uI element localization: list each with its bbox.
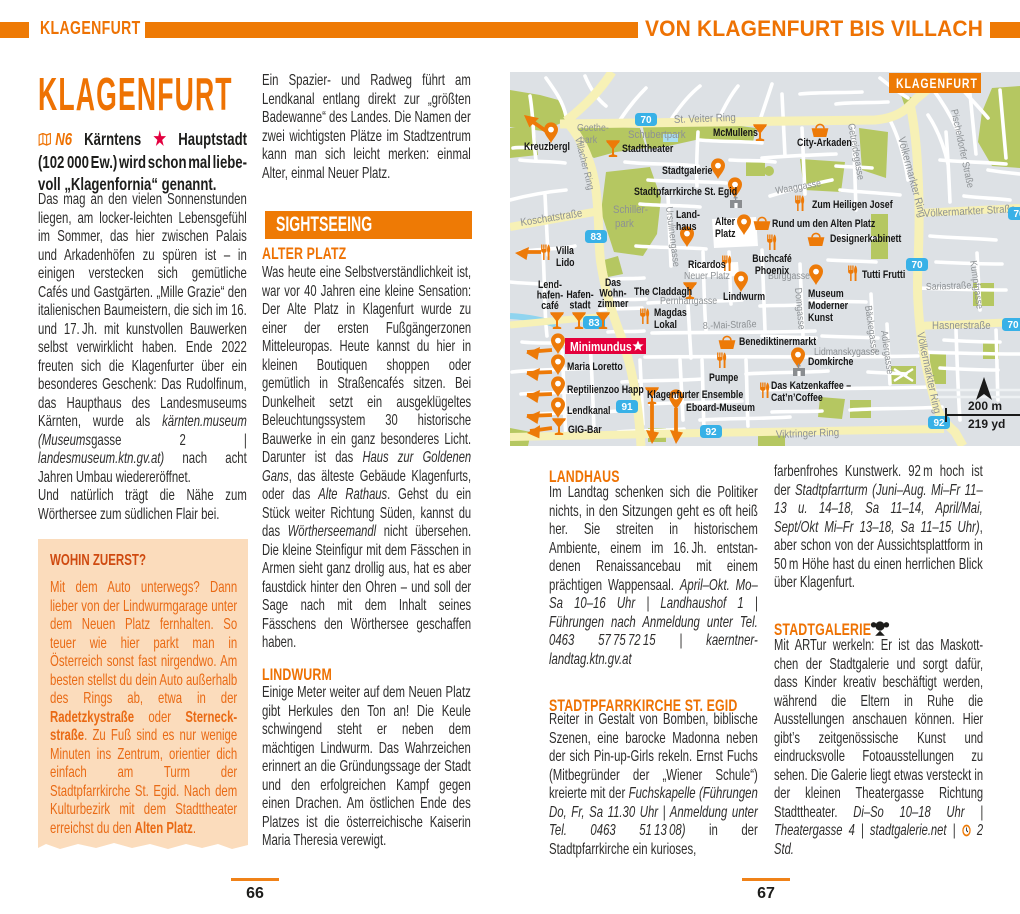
svg-text:stadt: stadt <box>569 300 591 312</box>
svg-text:City-Arkaden: City-Arkaden <box>797 137 852 149</box>
svg-text:Phoenix: Phoenix <box>755 265 790 277</box>
svg-text:219 yd: 219 yd <box>968 417 1005 431</box>
svg-text:Lindwurm: Lindwurm <box>723 291 765 303</box>
svg-text:8.-Mai-Straße: 8.-Mai-Straße <box>703 318 757 332</box>
svg-text:Kunst: Kunst <box>808 312 834 324</box>
svg-text:Lido: Lido <box>556 257 575 269</box>
svg-text:Hasnerstraße: Hasnerstraße <box>932 321 991 333</box>
svg-text:KLAGENFURT: KLAGENFURT <box>896 76 978 92</box>
svg-text:Domkirche: Domkirche <box>808 356 854 368</box>
svg-text:zimmer: zimmer <box>598 298 629 310</box>
svg-text:Minimundus: Minimundus <box>570 340 632 354</box>
svg-text:café: café <box>541 300 559 312</box>
svg-text:91: 91 <box>621 402 633 413</box>
svg-text:Stadtpfarrkirche St. Egid: Stadtpfarrkirche St. Egid <box>634 186 737 198</box>
svg-text:92: 92 <box>705 427 717 438</box>
svg-text:park: park <box>615 219 635 231</box>
svg-text:Lendkanal: Lendkanal <box>567 405 611 417</box>
svg-text:McMullens: McMullens <box>713 127 758 139</box>
svg-text:200 m: 200 m <box>968 399 1002 413</box>
svg-text:Rund um den Alten Platz: Rund um den Alten Platz <box>772 218 875 230</box>
svg-text:Sariastraße: Sariastraße <box>926 279 972 292</box>
svg-text:haus: haus <box>676 221 697 233</box>
svg-text:Reptilienzoo Happ: Reptilienzoo Happ <box>567 384 644 396</box>
svg-text:GIG-Bar: GIG-Bar <box>568 424 602 436</box>
svg-text:Eboard-Museum: Eboard-Museum <box>686 402 755 414</box>
svg-text:Stadtgalerie: Stadtgalerie <box>662 165 713 177</box>
svg-text:Zum Heiligen Josef: Zum Heiligen Josef <box>812 199 893 211</box>
svg-text:Buchcafé: Buchcafé <box>752 253 792 265</box>
svg-text:Moderner: Moderner <box>808 300 848 312</box>
svg-text:70: 70 <box>640 115 652 126</box>
svg-text:70: 70 <box>1013 209 1020 220</box>
svg-text:Viktringer Ring: Viktringer Ring <box>776 427 840 441</box>
svg-text:Maria Loretto: Maria Loretto <box>567 361 623 373</box>
svg-text:Villa: Villa <box>556 245 574 257</box>
svg-text:83: 83 <box>590 232 602 243</box>
svg-text:92: 92 <box>933 418 945 429</box>
svg-text:Klagenfurter Ensemble: Klagenfurter Ensemble <box>647 389 744 401</box>
svg-text:Ricardos: Ricardos <box>688 259 726 271</box>
svg-text:70: 70 <box>1007 320 1019 331</box>
svg-text:83: 83 <box>588 318 600 329</box>
svg-text:Pumpe: Pumpe <box>709 372 739 384</box>
svg-text:Platz: Platz <box>715 228 736 240</box>
svg-text:70: 70 <box>911 260 923 271</box>
svg-text:Schiller-: Schiller- <box>613 205 648 217</box>
svg-text:Benediktinermarkt: Benediktinermarkt <box>739 336 817 348</box>
svg-text:Kreuzbergl: Kreuzbergl <box>524 141 570 153</box>
svg-text:Lokal: Lokal <box>654 319 677 331</box>
svg-text:Land-: Land- <box>676 209 700 221</box>
svg-text:Designerkabinett: Designerkabinett <box>830 233 902 245</box>
svg-text:Goethe-: Goethe- <box>577 121 609 133</box>
svg-text:Stadttheater: Stadttheater <box>622 143 673 155</box>
svg-text:Das Katzenkaffee –: Das Katzenkaffee – <box>771 380 852 392</box>
svg-text:Tutti Frutti: Tutti Frutti <box>862 269 906 281</box>
svg-text:Magdas: Magdas <box>654 307 687 319</box>
svg-text:Cat’n’Coffee: Cat’n’Coffee <box>771 392 823 404</box>
svg-text:The Claddagh: The Claddagh <box>634 286 692 298</box>
svg-text:Schubertpark: Schubertpark <box>628 130 686 142</box>
svg-text:St. Veiter Ring: St. Veiter Ring <box>674 112 736 126</box>
svg-text:Museum: Museum <box>808 288 844 300</box>
svg-text:Alter: Alter <box>715 216 735 228</box>
